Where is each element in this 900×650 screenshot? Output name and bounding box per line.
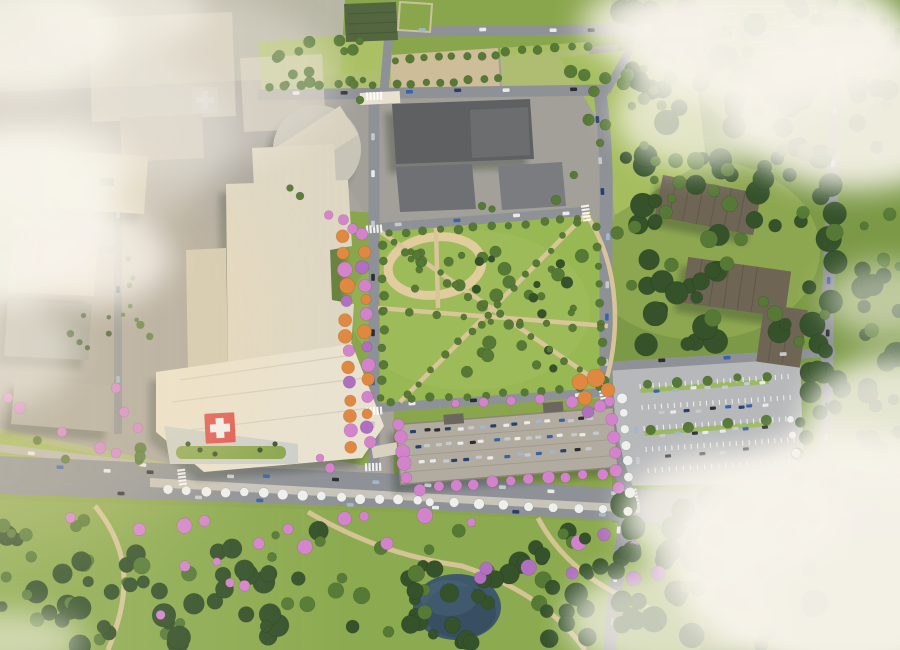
tree [359, 246, 371, 258]
car [453, 218, 460, 222]
car [559, 418, 565, 422]
tree [454, 338, 461, 345]
tree [593, 243, 602, 252]
tree [393, 419, 405, 431]
tree [568, 309, 575, 316]
tree [424, 545, 434, 555]
tree [578, 391, 592, 405]
car [723, 356, 730, 360]
tree [521, 560, 537, 576]
car [744, 382, 750, 386]
car [424, 483, 431, 487]
tree [623, 456, 633, 466]
tree [471, 589, 485, 603]
tree [617, 546, 630, 559]
tree [440, 584, 459, 603]
tree [573, 219, 581, 227]
tree [574, 504, 583, 513]
tree [518, 46, 526, 54]
tree [551, 195, 561, 205]
tree [391, 239, 398, 246]
car [544, 419, 550, 423]
scene-svg [0, 0, 900, 650]
car [578, 416, 584, 420]
car [617, 526, 621, 533]
tree [587, 369, 605, 387]
tree [646, 425, 656, 435]
car [585, 447, 591, 451]
car [568, 419, 574, 423]
tree [427, 367, 434, 374]
tree [452, 399, 460, 407]
tree [392, 58, 399, 65]
tree [360, 77, 366, 83]
tree [479, 398, 489, 408]
tree [401, 615, 419, 633]
car [557, 433, 563, 437]
tree [426, 561, 443, 578]
car [513, 213, 520, 217]
tree [620, 409, 628, 417]
tree [498, 500, 508, 510]
tree [643, 380, 652, 389]
tree [405, 54, 414, 63]
tree [826, 224, 844, 242]
car [480, 425, 486, 429]
tree [561, 277, 573, 289]
tree [417, 508, 433, 524]
car [675, 431, 681, 435]
tree [620, 152, 632, 164]
tree [758, 296, 769, 307]
tree [599, 72, 611, 84]
tree [393, 494, 403, 504]
tree [451, 480, 462, 491]
car [503, 423, 509, 427]
car [742, 427, 748, 431]
car [547, 489, 554, 493]
tree [569, 324, 577, 332]
tree [583, 114, 595, 126]
tree [361, 358, 375, 372]
tree [362, 409, 372, 419]
tree [489, 206, 496, 213]
tree [434, 481, 444, 491]
tree [496, 310, 504, 318]
car [725, 405, 731, 409]
tree [423, 79, 430, 86]
tree [548, 503, 557, 512]
tree [545, 580, 560, 595]
tree [579, 533, 591, 545]
tree [360, 308, 373, 321]
tree [448, 53, 455, 60]
road-top-link [384, 33, 389, 92]
gray-hall-main-patch [470, 107, 530, 158]
tree [381, 537, 394, 550]
tree [362, 373, 375, 386]
tree [458, 252, 465, 259]
car [490, 424, 496, 428]
car [512, 510, 519, 514]
tree [572, 374, 588, 390]
tree [416, 382, 422, 388]
tree [441, 351, 449, 359]
tree [624, 472, 633, 481]
tree [394, 430, 407, 443]
tree [734, 374, 742, 382]
tree [511, 285, 518, 292]
tree [488, 222, 496, 230]
tree [478, 52, 486, 60]
car [504, 455, 510, 459]
tree [435, 53, 443, 61]
tree [672, 377, 682, 387]
tree [521, 389, 529, 397]
tree [595, 299, 603, 307]
tree [579, 564, 592, 577]
crosswalk-bar [373, 92, 375, 100]
tree [379, 291, 388, 300]
tree [454, 225, 463, 234]
car [494, 438, 500, 442]
tree [418, 227, 426, 235]
tree [582, 406, 594, 418]
car [550, 28, 557, 32]
car [432, 506, 439, 510]
tree [629, 221, 642, 234]
tree [598, 338, 607, 347]
car [738, 405, 744, 409]
tree [686, 175, 706, 195]
car [710, 406, 716, 410]
tree [393, 80, 402, 89]
tree [499, 389, 507, 397]
tree [606, 413, 618, 425]
car [702, 431, 708, 435]
tree [540, 630, 558, 648]
car [524, 453, 530, 457]
tree [517, 340, 527, 350]
tree [767, 306, 783, 322]
tree [436, 79, 444, 87]
tree [517, 319, 523, 325]
car [458, 427, 464, 431]
car [430, 459, 436, 463]
tree [575, 249, 589, 263]
tree [797, 206, 810, 219]
tree [464, 75, 473, 84]
tree [608, 431, 621, 444]
tree [763, 372, 772, 381]
tree [408, 565, 425, 582]
tree [824, 250, 848, 274]
crosswalk-bar [379, 463, 381, 471]
tree [506, 476, 516, 486]
tree [541, 217, 549, 225]
tree [464, 293, 472, 301]
tree [648, 214, 662, 228]
tree [722, 196, 738, 212]
car [503, 88, 510, 92]
tree [522, 221, 530, 229]
tree [421, 54, 428, 61]
tree [794, 336, 805, 347]
car [487, 456, 493, 460]
tree [787, 416, 794, 423]
cloud [615, 60, 785, 170]
tree [461, 314, 467, 320]
tree [528, 333, 535, 340]
car [704, 386, 710, 390]
tree [761, 415, 771, 425]
gray-hall-south [396, 164, 476, 212]
tree [481, 300, 488, 307]
tree [681, 337, 695, 351]
tree [377, 394, 384, 401]
car [605, 313, 609, 320]
tree [578, 69, 590, 81]
car [410, 430, 416, 434]
tree [488, 319, 494, 325]
tree [769, 219, 782, 232]
car [549, 450, 555, 454]
tree [532, 360, 541, 369]
tree [523, 474, 534, 485]
car [547, 435, 553, 439]
tree [411, 285, 419, 293]
tree [667, 194, 676, 203]
car [762, 403, 768, 407]
crosswalk-bar [380, 92, 382, 100]
car [479, 28, 486, 32]
tree [461, 366, 473, 378]
car [579, 433, 585, 437]
tree [426, 498, 434, 506]
tree [592, 223, 600, 231]
tree [578, 470, 587, 479]
tree [407, 80, 415, 88]
tree [428, 629, 438, 639]
car [600, 188, 604, 195]
car [463, 458, 469, 462]
tree [524, 502, 533, 511]
tree [548, 248, 554, 254]
car [720, 429, 726, 433]
tree [621, 441, 631, 451]
car [457, 441, 463, 445]
car [536, 420, 542, 424]
tree [611, 226, 624, 239]
car [451, 459, 457, 463]
tree [359, 280, 372, 293]
car [746, 404, 752, 408]
car [468, 426, 474, 430]
tree [533, 281, 540, 288]
tree [720, 257, 734, 271]
car [722, 385, 728, 389]
tree [648, 194, 662, 208]
tree [402, 229, 410, 237]
car [443, 459, 449, 463]
tree [808, 361, 827, 380]
tree [464, 394, 471, 401]
tree [592, 558, 608, 574]
tree [362, 342, 372, 352]
tree [486, 476, 498, 488]
tree [559, 232, 565, 238]
car [670, 410, 676, 414]
tree [475, 257, 484, 266]
tree [492, 51, 500, 59]
tree [734, 233, 747, 246]
tree [566, 396, 578, 408]
tree [700, 231, 717, 248]
tree [564, 65, 577, 78]
tree [597, 324, 604, 331]
car [371, 133, 375, 140]
car [658, 411, 664, 415]
car [759, 381, 765, 385]
car [593, 431, 599, 435]
tree [485, 312, 492, 319]
tree [468, 479, 479, 490]
car [514, 437, 520, 441]
tree [673, 176, 687, 190]
car [570, 87, 577, 91]
car [511, 422, 517, 426]
tree [533, 45, 542, 54]
car [395, 222, 402, 226]
car [477, 439, 483, 443]
car [606, 233, 610, 240]
car [445, 427, 451, 431]
car [434, 428, 440, 432]
tree [529, 293, 538, 302]
tree [664, 258, 678, 272]
tree [359, 512, 369, 522]
tree [488, 256, 495, 263]
tree [381, 307, 388, 314]
tree [610, 464, 623, 477]
tree [601, 383, 615, 397]
tree [556, 259, 565, 268]
tree [404, 391, 412, 399]
tree [386, 230, 393, 237]
tree [378, 241, 387, 250]
tree [560, 357, 568, 365]
tree [369, 82, 376, 89]
tree [494, 74, 502, 82]
tree [480, 562, 493, 575]
tree [597, 357, 606, 366]
tree [650, 176, 658, 184]
tree [683, 422, 694, 433]
tree [753, 168, 774, 189]
tree [570, 171, 578, 179]
car [683, 409, 689, 413]
tree [558, 528, 569, 539]
tree [378, 275, 386, 283]
tree [620, 425, 629, 434]
car [692, 431, 698, 435]
park-path-spoke [436, 228, 438, 308]
tree [463, 634, 479, 650]
tree [610, 447, 622, 459]
tree [598, 528, 611, 541]
car [571, 433, 577, 437]
tree [361, 294, 371, 304]
tree [818, 344, 833, 359]
tree [452, 524, 465, 537]
tree [537, 292, 545, 300]
tree [537, 387, 545, 395]
tree [705, 262, 721, 278]
tree [595, 263, 602, 270]
car [371, 170, 375, 177]
tree [635, 333, 658, 356]
tree [397, 456, 411, 470]
tree [546, 346, 553, 353]
tree [407, 583, 424, 600]
car [732, 427, 738, 431]
car [499, 485, 506, 489]
tree [364, 436, 376, 448]
car [470, 441, 476, 445]
car [419, 460, 425, 464]
tree [555, 385, 563, 393]
tree [533, 260, 541, 268]
tree [498, 262, 511, 275]
tree [883, 208, 896, 221]
car [658, 358, 665, 362]
tree [437, 226, 444, 233]
tree [501, 47, 510, 56]
tree [413, 496, 422, 505]
tree [704, 310, 721, 327]
tree [537, 309, 546, 318]
tree [401, 472, 412, 483]
tree [490, 289, 504, 303]
car [454, 88, 461, 92]
car [436, 443, 442, 447]
car [595, 116, 599, 123]
tree [556, 215, 564, 223]
tree [379, 257, 387, 265]
tree [443, 279, 451, 287]
car [560, 449, 566, 453]
tree [550, 43, 559, 52]
tree [522, 271, 529, 278]
tree [383, 626, 394, 637]
tree [597, 469, 608, 480]
tree [542, 471, 555, 484]
tree [438, 269, 444, 275]
car [690, 386, 696, 390]
tree [449, 498, 459, 508]
crosswalk-bar [366, 92, 368, 100]
car [659, 434, 665, 438]
tree [723, 418, 733, 428]
garage-stair-1 [443, 413, 464, 425]
car [826, 329, 830, 336]
car [524, 421, 530, 425]
tree [444, 257, 454, 267]
tree [600, 119, 611, 130]
car [406, 90, 413, 94]
car [372, 480, 379, 484]
tree [481, 75, 489, 83]
